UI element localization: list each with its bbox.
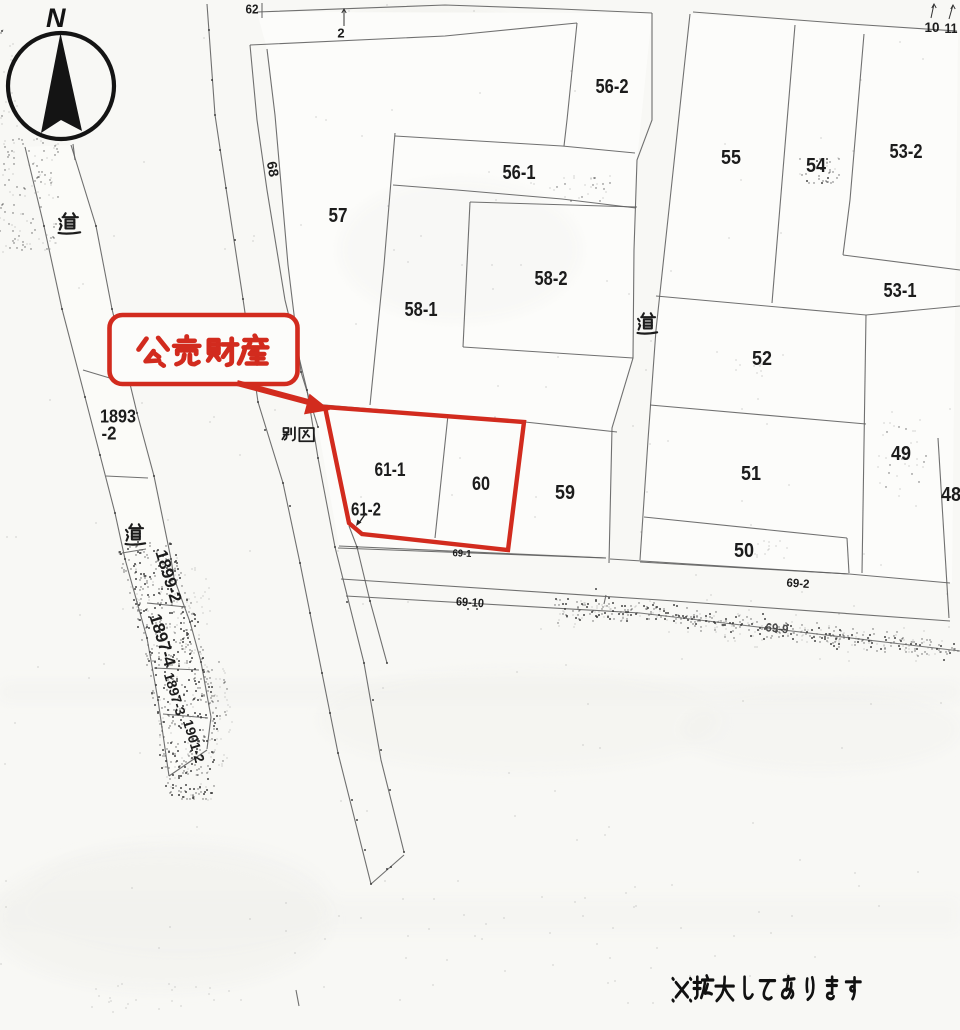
svg-text:68: 68 <box>264 160 282 178</box>
svg-text:61-2: 61-2 <box>351 500 381 520</box>
svg-text:-2: -2 <box>102 424 117 444</box>
svg-text:69-1: 69-1 <box>452 548 472 560</box>
svg-text:54: 54 <box>806 155 827 177</box>
svg-text:N: N <box>46 3 66 33</box>
svg-text:69-9: 69-9 <box>765 620 790 636</box>
svg-text:10: 10 <box>925 19 940 35</box>
svg-text:49: 49 <box>891 443 911 465</box>
svg-text:62: 62 <box>246 2 259 17</box>
svg-text:55: 55 <box>721 147 741 169</box>
svg-text:58-2: 58-2 <box>535 268 568 290</box>
svg-text:48: 48 <box>941 484 960 506</box>
svg-text:57: 57 <box>329 205 348 227</box>
svg-text:69-10: 69-10 <box>456 594 485 610</box>
svg-text:59: 59 <box>555 482 575 504</box>
svg-text:69-2: 69-2 <box>786 576 810 592</box>
svg-text:2: 2 <box>337 26 344 41</box>
svg-text:56-2: 56-2 <box>596 76 629 98</box>
svg-text:60: 60 <box>472 474 490 495</box>
svg-text:50: 50 <box>734 540 754 562</box>
svg-text:58-1: 58-1 <box>405 299 438 321</box>
svg-text:61-1: 61-1 <box>375 460 406 481</box>
svg-text:56-1: 56-1 <box>503 162 536 184</box>
svg-text:53-1: 53-1 <box>884 280 917 302</box>
svg-text:53-2: 53-2 <box>890 141 923 163</box>
svg-text:51: 51 <box>741 463 761 485</box>
svg-text:52: 52 <box>752 348 772 370</box>
svg-text:11: 11 <box>945 20 958 36</box>
